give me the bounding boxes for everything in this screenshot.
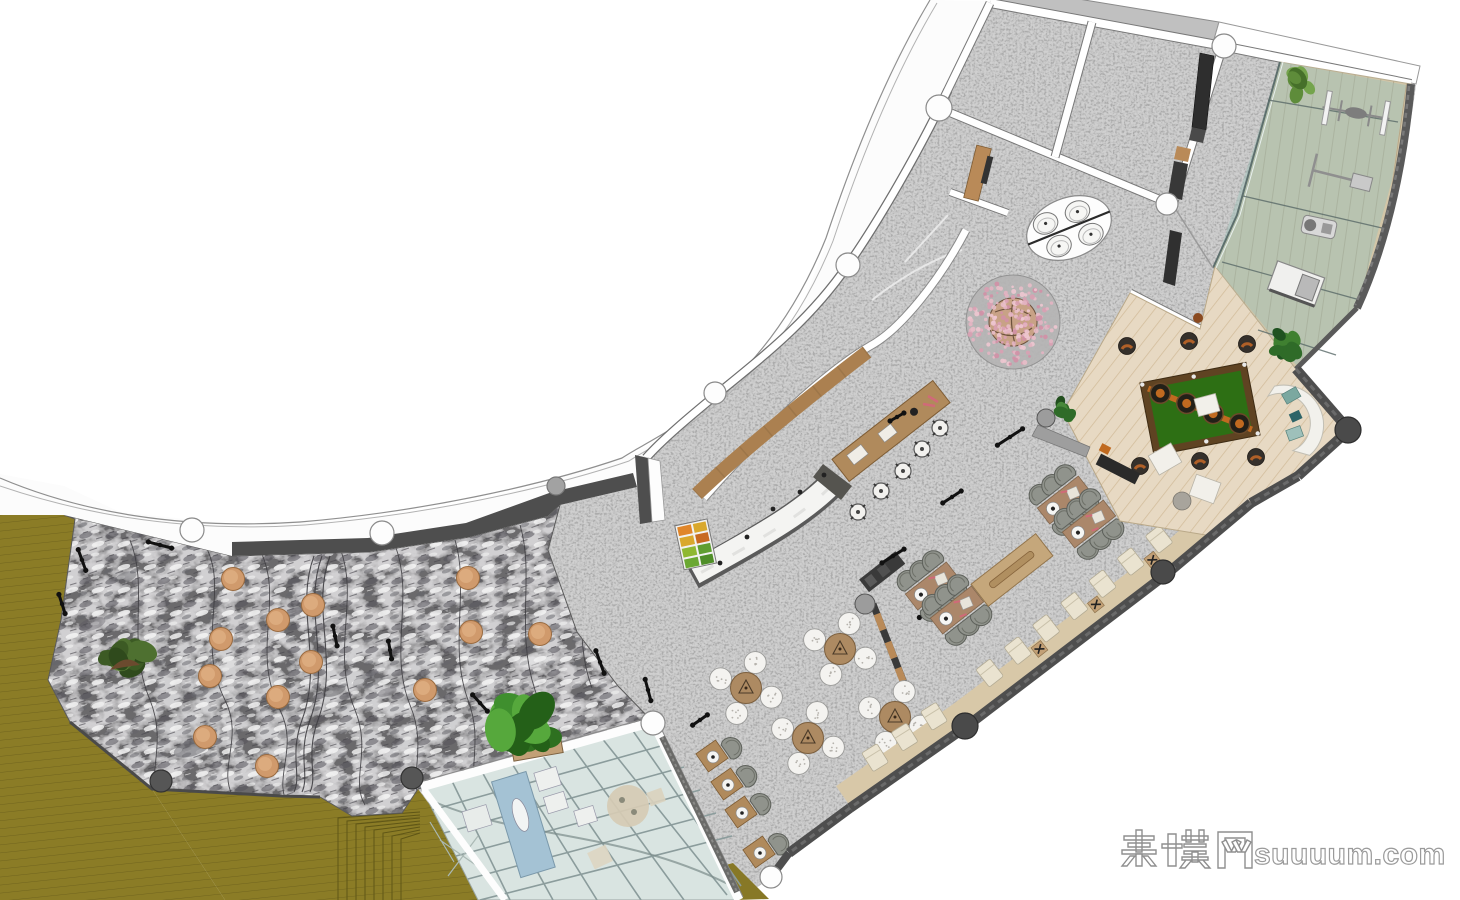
- svg-text:suuuum.com: suuuum.com: [1254, 838, 1446, 871]
